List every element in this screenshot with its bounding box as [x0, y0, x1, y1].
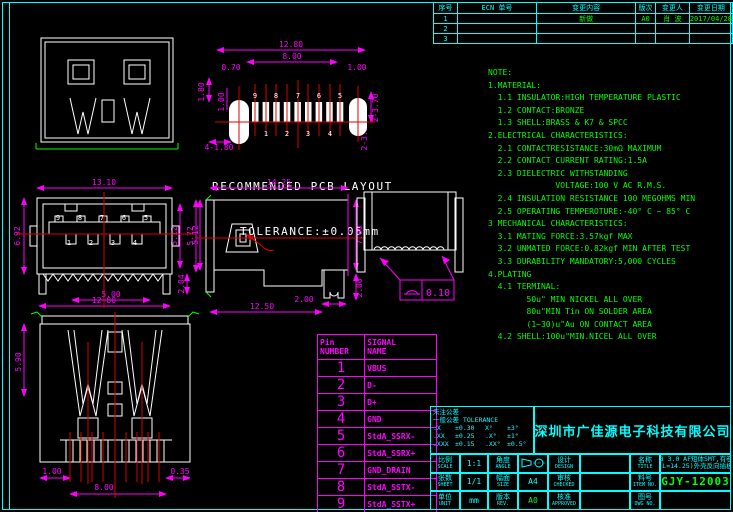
pin-row: 3 D+	[318, 394, 437, 411]
pin-row: 1 VBUS	[318, 360, 437, 377]
dim-rear-flatness: 0.10	[426, 288, 450, 299]
dim-front-hleft: 6.92	[13, 226, 22, 245]
svg-text:1: 1	[67, 239, 71, 247]
rev-col-rev: 版次	[636, 3, 656, 14]
dim-front-width: 13.10	[92, 178, 116, 187]
dim-pcb-span: 8.00	[282, 52, 301, 61]
rev-value: A0	[518, 491, 548, 510]
tolerance-title: 未注公差	[433, 408, 531, 416]
signal-name-header: SIGNALNAME	[365, 335, 437, 360]
angle-label: 角度ANGLE	[488, 454, 518, 473]
svg-text:7: 7	[296, 92, 300, 100]
title-label: 名称TITLE	[630, 454, 660, 473]
svg-text:3: 3	[306, 130, 310, 138]
dim-bottom-top: 5.00	[101, 290, 120, 299]
unit-label: 单位UNIT	[430, 491, 460, 510]
pin-row: 9 StdA_SSTX+	[318, 496, 437, 512]
revision-table: 序号 ECN 单号 变更内容 版次 变更人 变更日期 1 新做A0 肖 波201…	[433, 2, 733, 44]
pin-row: 5 StdA_SSRX-	[318, 428, 437, 445]
dim-front-hright: 5.12	[170, 226, 179, 245]
note-line: 2.5 OPERATING TEMPEROTURE:-40° C ~ 85° C	[488, 206, 695, 219]
rev-col-no: 序号	[434, 3, 458, 14]
note-line: 2.3 DIELECTRIC WITHSTANDING	[488, 168, 695, 181]
note-line: 4.PLATING	[488, 269, 695, 282]
pin-table-header: PinNUMBER SIGNALNAME	[318, 335, 437, 360]
svg-text:2: 2	[89, 239, 93, 247]
svg-text:2: 2	[285, 130, 289, 138]
revision-row: 2	[434, 24, 733, 34]
scale-value: 1:1	[460, 454, 488, 473]
pin-table: PinNUMBER SIGNALNAME 1 VBUS 2 D- 3 D+ 4 …	[317, 334, 437, 512]
tolerance-row: .XXX±0.15 .XX°±0.5°	[433, 440, 531, 448]
pin-row: 7 GND_DRAIN	[318, 462, 437, 479]
scale-label: 比例SCALE	[430, 454, 460, 473]
note-line: 2.4 INSULATION RESISTANCE 100 MEGOHMS MI…	[488, 193, 695, 206]
size-value: A4	[518, 473, 548, 492]
revision-row: 3	[434, 34, 733, 44]
approve-label: 核准APPROVED	[548, 491, 580, 510]
svg-text:8: 8	[78, 214, 82, 222]
side-outline	[196, 195, 366, 298]
front-pin-numbers: 9 8 7 6 5 1 2 3 4	[56, 214, 148, 247]
rev-col-content: 变更内容	[537, 3, 636, 14]
tolerance-subtitle: 一般公差 TOLERANCE	[433, 416, 531, 424]
svg-text:5: 5	[144, 214, 148, 222]
note-line: 3.2 UNMATED FORCE:0.82kgf MIN AFTER TEST	[488, 243, 695, 256]
pin-row: 8 StdA_SSTX-	[318, 479, 437, 496]
view-top	[28, 28, 200, 174]
note-line: 2.ELECTRICAL CHARACTERISTICS:	[488, 130, 695, 143]
note-line: 3.3 DURABILITY MANDATORY:5,000 CYCLES	[488, 256, 695, 269]
drawing-sheet: 序号 ECN 单号 变更内容 版次 变更人 变更日期 1 新做A0 肖 波201…	[0, 0, 733, 512]
dim-side-legw: 2.00	[294, 295, 313, 304]
dim-pcb-offset: 0.70	[221, 63, 240, 72]
view-rear: 0.10	[344, 184, 476, 316]
note-line: 1.2 CONTACT:BRONZE	[488, 105, 695, 118]
tolerance-row: .X±0.30 X°±3°	[433, 424, 531, 432]
dim-side-length: 14.25	[267, 178, 291, 187]
pin-row: 2 D-	[318, 377, 437, 394]
note-line: 1.MATERIAL:	[488, 80, 695, 93]
pages-label: 张数SHEET	[430, 473, 460, 492]
item-number: GJY-12003	[660, 473, 731, 492]
dwg-label: 图号DWG NO.	[630, 491, 660, 510]
note-line: 50u" MIN NICKEL ALL OVER	[488, 294, 695, 307]
note-line: 1.1 INSULATOR:HIGH TEMPERATURE PLASTIC	[488, 92, 695, 105]
svg-text:1: 1	[264, 130, 268, 138]
svg-text:6: 6	[317, 92, 321, 100]
note-line: 1.3 SHELL:BRASS & K7 & SPCC	[488, 117, 695, 130]
dim-pcb-v2: 1.00	[217, 92, 226, 111]
check-label: 审核CHECKED	[548, 473, 580, 492]
note-line: 80u"MIN Tin ON SOLDER AREA	[488, 306, 695, 319]
revision-row: 1 新做A0 肖 波2017/04/28	[434, 14, 733, 24]
pin-row: 6 StdA_SSRX+	[318, 445, 437, 462]
svg-text:4: 4	[328, 130, 332, 138]
note-line: 3.1 MATING FORCE:3.57kgf MAX	[488, 231, 695, 244]
note-line: VOLTAGE:100 V AC R.M.S.	[488, 180, 695, 193]
dim-pcb-overall: 12.80	[279, 40, 303, 49]
svg-text:3: 3	[111, 239, 115, 247]
notes-block: NOTE:1.MATERIAL: 1.1 INSULATOR:HIGH TEMP…	[488, 67, 695, 344]
note-line: 2.1 CONTACTRESISTANCE:30mΩ MAXIMUM	[488, 143, 695, 156]
dim-side-hleft: 5.12	[191, 225, 200, 244]
pin-row: 4 GND	[318, 411, 437, 428]
note-line: 3 MECHANICAL CHARACTERISTICS:	[488, 218, 695, 231]
rev-col-ecn: ECN 单号	[457, 3, 536, 14]
note-line: (1~30)u"Au ON CONTACT AREA	[488, 319, 695, 332]
dim-pcb-r1: 2-3.70	[371, 93, 380, 122]
svg-text:5: 5	[338, 92, 342, 100]
dim-pcb-end: 1.00	[347, 63, 366, 72]
drawing-title: USB 3.0 AF短体SMT,有卷边(L=14.25)外壳反向插板	[660, 454, 731, 473]
note-line: 2.2 CONTACT CURRENT RATING:1.5A	[488, 155, 695, 168]
revision-header-row: 序号 ECN 单号 变更内容 版次 变更人 变更日期	[434, 3, 733, 14]
check-signature	[580, 473, 630, 492]
coplanarity-callout: 0.10	[380, 256, 454, 300]
svg-text:7: 7	[100, 214, 104, 222]
tolerance-row: .XX±0.25 .X°±1°	[433, 432, 531, 440]
view-pcb-layout: 12.80 8.00 0.70 1.00 1.80 1.00 4-1.80 2-…	[197, 36, 383, 154]
third-angle-projection-icon	[518, 454, 548, 473]
svg-text:6: 6	[122, 214, 126, 222]
pages-value: 1/1	[460, 473, 488, 492]
dwg-number	[660, 491, 731, 510]
dim-bottom-bright: 0.35	[170, 467, 189, 476]
rev-col-date: 变更日期	[689, 3, 732, 14]
approve-signature	[580, 491, 630, 510]
size-label: 幅面SIZE	[488, 473, 518, 492]
dim-pcb-v1: 1.80	[197, 82, 206, 101]
design-label: 设计DESIGN	[548, 454, 580, 473]
top-view-outline	[36, 38, 178, 149]
dim-bottom-bspan: 8.00	[94, 483, 113, 492]
svg-text:4: 4	[133, 239, 137, 247]
unit-value: mm	[460, 491, 488, 510]
svg-text:9: 9	[56, 214, 60, 222]
dim-side-bottom: 12.50	[250, 302, 274, 311]
svg-text:8: 8	[274, 92, 278, 100]
title-block: 未注公差 一般公差 TOLERANCE .X±0.30 X°±3° .XX±0.…	[430, 406, 731, 510]
tolerance-block: 未注公差 一般公差 TOLERANCE .X±0.30 X°±3° .XX±0.…	[430, 406, 534, 454]
note-line: 4.2 SHELL:100u"MIN.NICEL ALL OVER	[488, 331, 695, 344]
note-line: 4.1 TERMINAL:	[488, 281, 695, 294]
svg-text:9: 9	[253, 92, 257, 100]
view-bottom: 5.00 5.90 1.00 0.35 8.00	[8, 286, 222, 512]
item-label: 料号ITEM NO.	[630, 473, 660, 492]
dim-bottom-left: 5.90	[14, 352, 23, 371]
rev-label: 版本REV.	[488, 491, 518, 510]
note-line: NOTE:	[488, 67, 695, 80]
company-name: 深圳市广佳源电子科技有限公司	[534, 406, 731, 454]
pin-number-header: PinNUMBER	[318, 335, 365, 360]
rev-col-by: 变更人	[656, 3, 690, 14]
design-signature	[580, 454, 630, 473]
dim-bottom-bleft: 1.00	[42, 467, 61, 476]
